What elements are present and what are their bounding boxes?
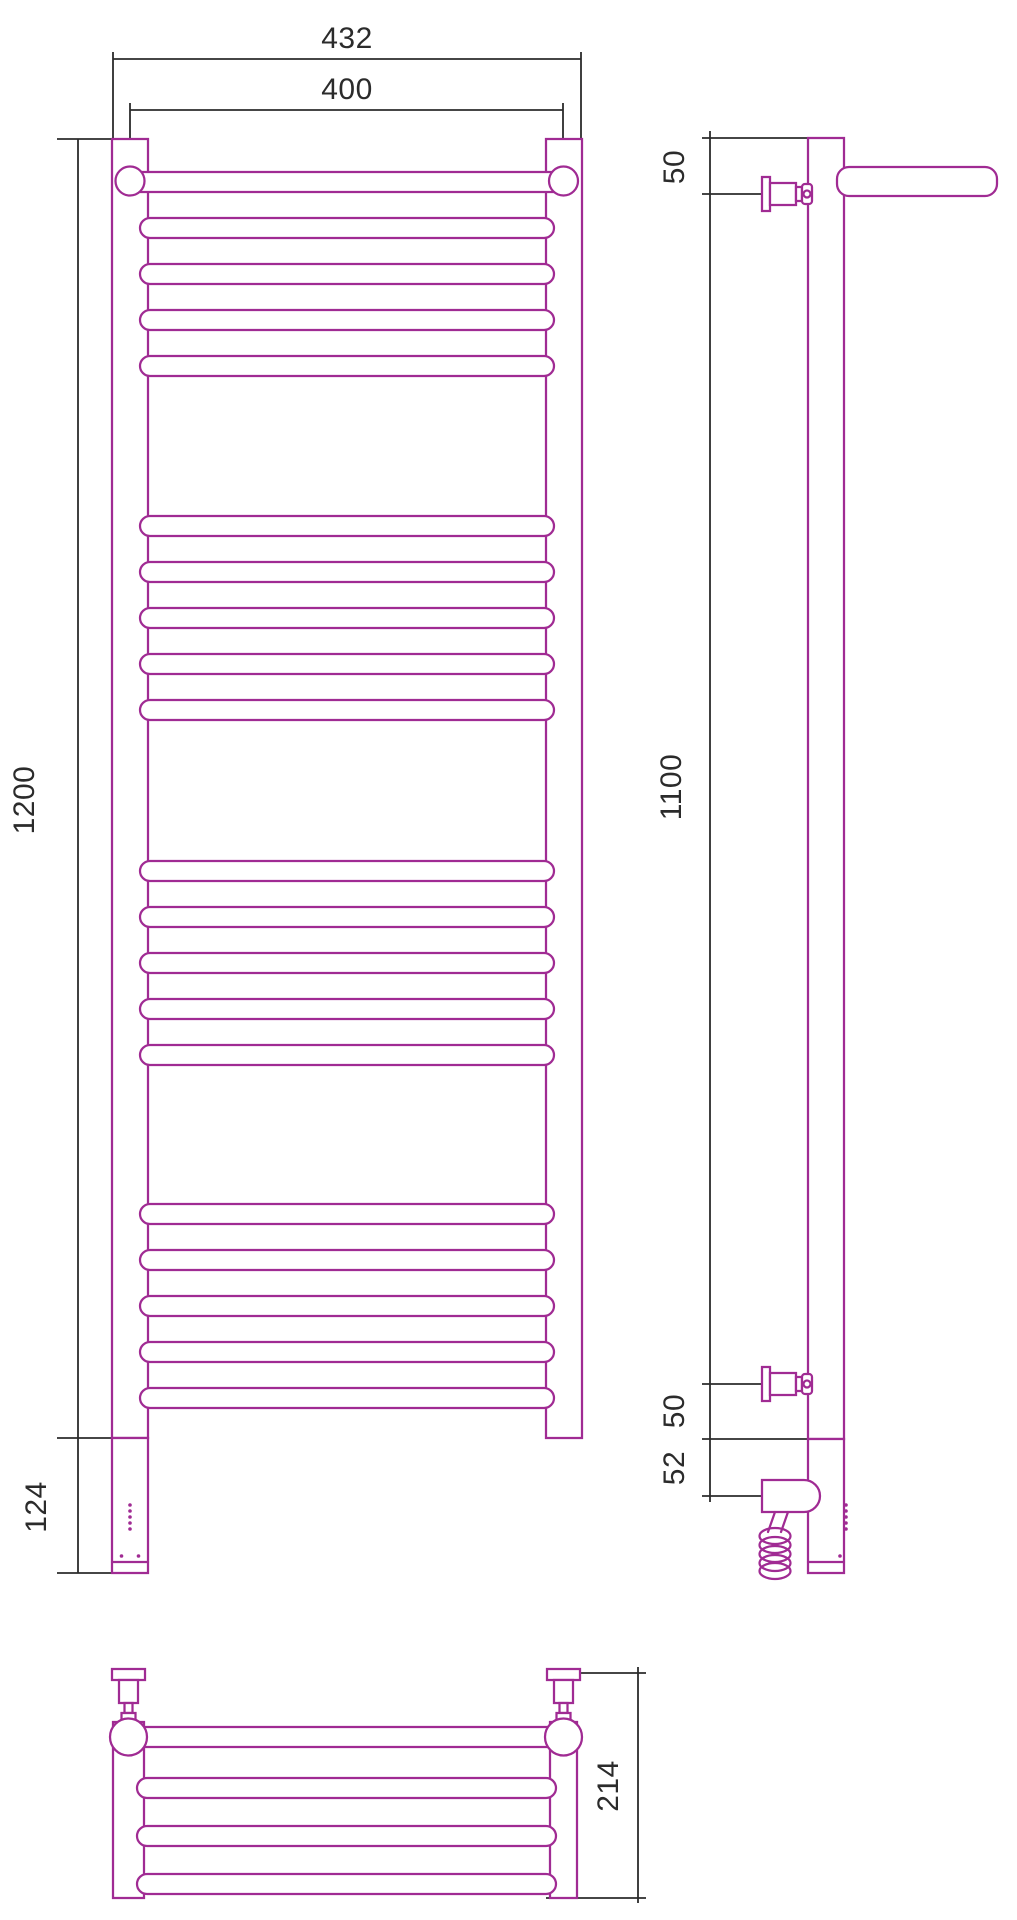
technical-drawing: 432 400 1200 124 xyxy=(0,0,1017,1920)
towel-rung xyxy=(140,861,554,881)
mount-boss-right xyxy=(549,167,578,196)
shelf-rung xyxy=(137,1874,556,1894)
dim-label-heating-element-offset: 52 xyxy=(658,1451,691,1485)
towel-rung xyxy=(140,264,554,284)
shelf-rung xyxy=(137,1826,556,1846)
shelf-rung xyxy=(137,1778,556,1798)
towel-rung xyxy=(140,1388,554,1408)
led-dot xyxy=(128,1521,132,1525)
led-dot xyxy=(137,1554,141,1558)
towel-rung xyxy=(140,356,554,376)
towel-rung xyxy=(140,1045,554,1065)
wall-brackets xyxy=(762,177,812,1401)
bracket-plate xyxy=(112,1669,145,1680)
led-dot xyxy=(128,1509,132,1513)
front-rungs xyxy=(140,218,554,1408)
coiled-cable xyxy=(760,1528,791,1579)
bracket-screw xyxy=(804,191,811,198)
towel-rung xyxy=(140,608,554,628)
heating-element-head xyxy=(762,1480,820,1512)
led-dot xyxy=(128,1503,132,1507)
dim-label-overall-width: 432 xyxy=(321,22,373,55)
led-dot xyxy=(844,1503,848,1507)
dim-label-top-bracket-offset: 50 xyxy=(658,150,691,184)
collector-tube-side xyxy=(808,138,844,1439)
towel-rung xyxy=(140,310,554,330)
mount-boss-left xyxy=(116,167,145,196)
dim-label-axis-width: 400 xyxy=(321,73,373,106)
bracket-stem xyxy=(125,1703,133,1713)
wall-brackets-top xyxy=(112,1669,580,1722)
collector-section-left xyxy=(110,1719,147,1756)
towel-rung xyxy=(140,953,554,973)
bracket-flange xyxy=(762,1367,770,1401)
towel-rung xyxy=(140,1204,554,1224)
led-dot xyxy=(844,1527,848,1531)
towel-rung xyxy=(140,562,554,582)
shelf-rungs xyxy=(137,1778,556,1894)
collector-tube-right xyxy=(546,139,582,1438)
bracket-screw xyxy=(804,1381,811,1388)
collector-section-right xyxy=(545,1719,582,1756)
side-dimensions: 50 1100 50 52 xyxy=(655,131,808,1502)
shelf-profile xyxy=(837,167,997,196)
side-view: 50 1100 50 52 xyxy=(655,131,997,1579)
towel-rung xyxy=(140,1250,554,1270)
top-shelf-rung xyxy=(135,172,558,192)
top-view: 214 xyxy=(110,1667,646,1903)
bracket-plate xyxy=(547,1669,580,1680)
towel-rung xyxy=(140,999,554,1019)
collector-tube-left xyxy=(112,139,148,1438)
towel-rung xyxy=(140,218,554,238)
front-dimensions: 432 400 1200 124 xyxy=(8,22,581,1573)
bracket-flange xyxy=(762,177,770,211)
dim-label-bottom-bracket-offset: 50 xyxy=(658,1394,691,1428)
led-dot xyxy=(128,1527,132,1531)
shelf-rear-rung xyxy=(144,1727,548,1747)
dim-label-heating-unit-height: 124 xyxy=(20,1481,53,1533)
towel-rung xyxy=(140,907,554,927)
led-dot xyxy=(844,1515,848,1519)
drawing-page: 432 400 1200 124 xyxy=(0,0,1017,1920)
bracket-body xyxy=(770,183,796,205)
bracket-body xyxy=(554,1680,573,1703)
towel-rung xyxy=(140,1342,554,1362)
bracket-body xyxy=(770,1373,796,1395)
led-dot xyxy=(844,1509,848,1513)
dim-label-shelf-depth: 214 xyxy=(592,1760,625,1812)
led-dot xyxy=(120,1554,124,1558)
dim-label-body-height: 1200 xyxy=(8,766,41,835)
led-dot xyxy=(838,1554,842,1558)
towel-rung xyxy=(140,516,554,536)
towel-rung xyxy=(140,1296,554,1316)
led-dot xyxy=(844,1521,848,1525)
towel-rung xyxy=(140,700,554,720)
front-view: 432 400 1200 124 xyxy=(8,22,582,1573)
led-dot xyxy=(128,1515,132,1519)
bracket-stem xyxy=(560,1703,568,1713)
bracket-body xyxy=(119,1680,138,1703)
towel-rung xyxy=(140,654,554,674)
dim-label-bracket-span: 1100 xyxy=(655,754,688,821)
